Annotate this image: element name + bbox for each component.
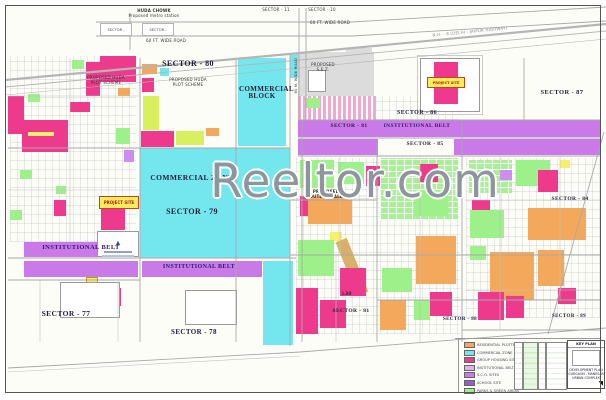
legend-side-bar — [514, 342, 523, 390]
legend-label: GROUP HOUSING SITE — [477, 358, 517, 362]
institutional-belt-left-label: INSTITUTIONAL BELT — [26, 245, 136, 252]
legend-label: SCHOOL SITE — [477, 381, 501, 385]
road-60ft-label-a: 60 FT. WIDE ROAD — [136, 39, 196, 44]
institutional-belt-right-label: INSTITUTIONAL BELT — [378, 124, 456, 130]
huda-line2: PLOT SCHEME — [145, 83, 231, 88]
sector-88-label: SECTOR - 88 — [440, 317, 480, 322]
legend-swatch — [464, 380, 475, 386]
key-plan-box — [572, 350, 600, 366]
sector-81-south-label: SECTOR - 81 — [328, 309, 374, 315]
legend-mini-table — [546, 342, 567, 390]
huda2-line2: PLOT SCHEME — [80, 81, 132, 86]
sector-box-left-label: SECTOR - — [107, 28, 124, 32]
legend-item: S.C.O. SITES — [464, 372, 514, 378]
sector-84-label: SECTOR - 84 — [546, 197, 594, 203]
title-block-lines: DEVELOPMENT PLAN GURGAON - MANESAR URBAN… — [568, 368, 604, 380]
legend-mini-table — [523, 342, 538, 390]
legend-divider-v — [458, 338, 459, 393]
road-60ft-label-b: 60 FT. WIDE ROAD — [300, 21, 360, 26]
institutional-belt-center-label: INSTITUTIONAL BELT — [143, 264, 255, 270]
legend-label: S.C.O. SITES — [477, 373, 499, 377]
legend-item: GROUP HOUSING SITE — [464, 357, 514, 363]
legend-swatch — [464, 365, 475, 371]
sector-89-label: SECTOR - 89 — [546, 314, 592, 319]
sector-86-label: SECTOR - 86 — [390, 110, 444, 116]
l30-label: L30 — [342, 292, 352, 297]
legend-item: SCHOOL SITE — [464, 380, 514, 386]
sector-box-right-label: SECTOR - — [149, 28, 166, 32]
legend-swatch — [464, 357, 475, 363]
sez-line2: S.E.Z. — [303, 68, 343, 73]
road-60m-label: 60 M. WIDE ROAD — [294, 58, 298, 93]
legend-item: INSTITUTIONAL BELT — [464, 365, 514, 371]
chowk-line2: Proposed metro station — [116, 14, 192, 19]
legend-swatch — [464, 342, 475, 348]
legend-item: PARKS & GREEN AREAS — [464, 388, 514, 394]
sector-81-band-label: SECTOR - 81 — [326, 124, 372, 130]
sez-label: PROPOSED S.E.Z. — [303, 63, 343, 72]
title-block: KEY PLAN DEVELOPMENT PLAN GURGAON - MANE… — [567, 340, 605, 389]
title-block-title: KEY PLAN — [568, 341, 604, 348]
sector-80-label: SECTOR - 80 — [145, 60, 231, 68]
legend-divider-h — [455, 338, 601, 339]
sector-85-label: SECTOR - 85 — [396, 142, 454, 148]
sector-79-label: SECTOR - 79 — [146, 208, 238, 216]
sector-10-label: SECTOR - 10 — [302, 8, 342, 13]
legend-item: RESIDENTIAL PLOTTED AREA — [464, 342, 514, 348]
sector-plan-map: HUDA CHOWK Proposed metro station SECTOR… — [0, 0, 606, 400]
sector-78-label: SECTOR - 78 — [156, 329, 232, 336]
watermark: Reeltor.com — [190, 154, 520, 209]
legend-swatch — [464, 350, 475, 356]
sector-11-label: SECTOR - 11 — [256, 8, 296, 13]
project-banner: PROJECT SITE — [99, 196, 139, 209]
legend-side-bar — [538, 342, 546, 390]
sector-87-label: SECTOR - 87 — [534, 90, 590, 97]
north-arrow-icon: ◥ — [598, 381, 603, 387]
huda-scheme-label-2: PROPOSED HUDA PLOT SCHEME — [80, 76, 132, 85]
commercial-block-line2: BLOCK — [239, 93, 285, 100]
legend-label: COMMERCIAL ZONE — [477, 351, 513, 355]
sector-box-right: SECTOR - — [142, 23, 174, 36]
legend-label: PARKS & GREEN AREAS — [477, 389, 519, 393]
legend-label: INSTITUTIONAL BELT — [477, 366, 514, 370]
chowk-label: HUDA CHOWK Proposed metro station — [116, 9, 192, 18]
sector-box-left: SECTOR - — [100, 23, 132, 36]
legend: RESIDENTIAL PLOTTED AREA COMMERCIAL ZONE… — [464, 342, 514, 395]
sector-77-label: SECTOR - 77 — [28, 310, 104, 318]
commercial-block-label: COMMERCIAL BLOCK — [239, 86, 285, 101]
legend-swatch — [464, 372, 475, 378]
legend-item: COMMERCIAL ZONE — [464, 350, 514, 356]
legend-swatch — [464, 388, 475, 394]
huda-scheme-label: PROPOSED HUDA PLOT SCHEME — [145, 78, 231, 87]
